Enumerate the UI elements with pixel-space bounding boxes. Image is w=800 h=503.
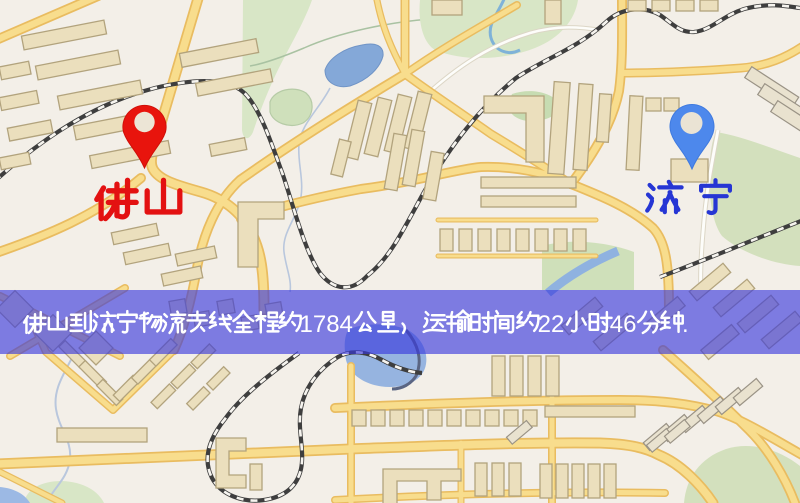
svg-text:.: . [682, 311, 689, 338]
svg-text:22: 22 [538, 311, 565, 338]
svg-text:46: 46 [610, 311, 637, 338]
svg-text:1784: 1784 [300, 311, 353, 338]
